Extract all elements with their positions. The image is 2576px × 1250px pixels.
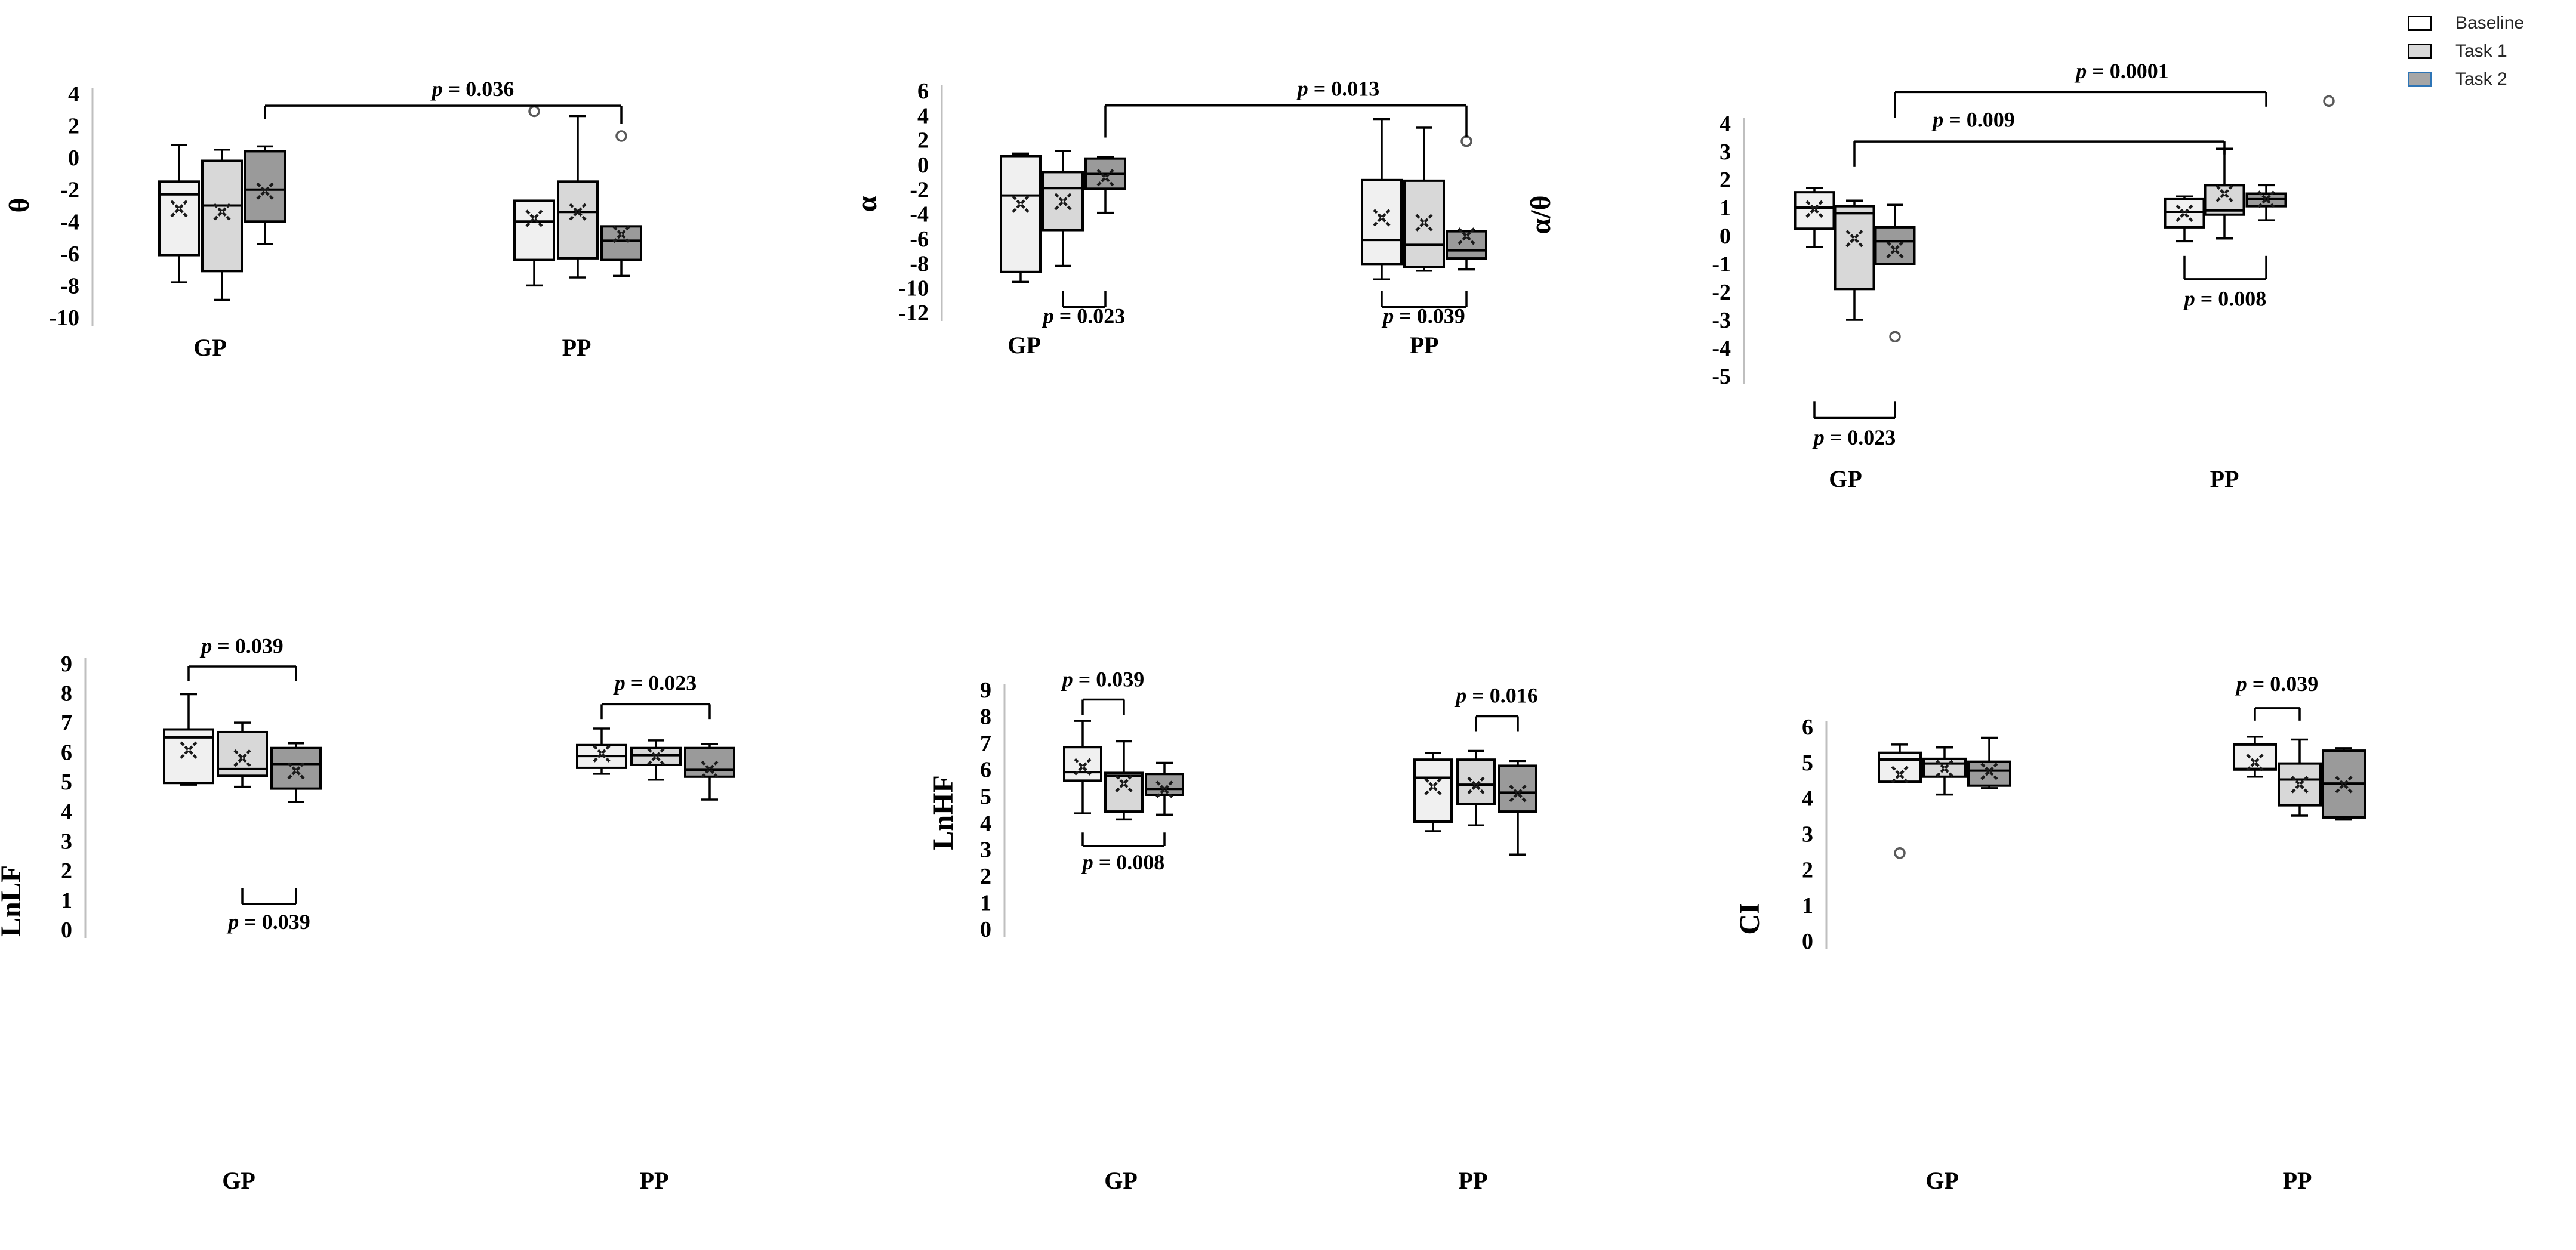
outlier-point <box>2324 96 2334 106</box>
y-tick-label: 7 <box>61 711 72 736</box>
y-tick-label: -8 <box>910 251 929 276</box>
y-tick-label: 1 <box>980 890 991 915</box>
y-tick-label: -10 <box>49 305 79 331</box>
y-tick-label: 2 <box>1720 168 1731 193</box>
box-GP-baseline <box>1001 153 1040 282</box>
y-axis-title: CI <box>1734 903 1765 934</box>
box-PP-baseline <box>1415 753 1452 831</box>
box-GP-baseline <box>1795 188 1834 247</box>
p-value-label: p = 0.0001 <box>2074 59 2169 83</box>
group-label-PP: PP <box>1410 332 1439 359</box>
significance-bracket: p = 0.016 <box>1454 683 1538 731</box>
significance-bracket: p = 0.009 <box>1854 108 2224 167</box>
box-GP-task2 <box>1968 738 2010 788</box>
y-axis-title: α/θ <box>1525 195 1557 234</box>
box-PP-task1 <box>2279 740 2321 816</box>
box-PP-task1 <box>631 740 680 780</box>
y-tick-label: 0 <box>917 153 929 178</box>
legend-swatch-baseline-icon <box>2408 16 2432 31</box>
group-label-PP: PP <box>2283 1167 2312 1194</box>
outlier-point <box>529 106 539 116</box>
box-PP-task2 <box>1447 137 1486 270</box>
p-value-label: p = 0.023 <box>613 671 697 695</box>
p-value-label: p = 0.036 <box>430 77 514 101</box>
outlier-point <box>1462 137 1471 146</box>
group-label-PP: PP <box>2210 465 2239 492</box>
box-PP-task1 <box>1458 751 1495 825</box>
group-label-GP: GP <box>193 334 227 361</box>
y-tick-label: 3 <box>1802 822 1813 847</box>
y-tick-label: 1 <box>1720 196 1731 221</box>
legend-item-task2: Task 2 <box>2408 70 2524 88</box>
significance-bracket: p = 0.023 <box>1042 291 1126 328</box>
p-value-label: p = 0.023 <box>1042 304 1126 328</box>
box-GP-task2 <box>1146 763 1183 815</box>
y-tick-label: 1 <box>61 888 72 913</box>
significance-bracket: p = 0.023 <box>1812 401 1896 449</box>
box-GP-baseline <box>1064 721 1101 813</box>
box-PP-baseline <box>1362 119 1401 280</box>
subplot-lnhf: 9876543210LnHFGPPPp = 0.039p = 0.008p = … <box>928 668 1538 1194</box>
outlier-point <box>1895 848 1905 858</box>
significance-bracket: p = 0.039 <box>189 634 296 681</box>
y-tick-label: 4 <box>980 811 991 836</box>
y-tick-label: -10 <box>898 276 929 301</box>
group-label-GP: GP <box>222 1167 255 1194</box>
p-value-label: p = 0.039 <box>226 910 310 934</box>
subplot-lnlf: 9876543210LnLFGPPPp = 0.039p = 0.039p = … <box>0 634 734 1194</box>
y-tick-label: 3 <box>980 837 991 862</box>
box-PP-baseline <box>2234 737 2276 777</box>
y-tick-label: 0 <box>68 146 79 171</box>
y-tick-label: 6 <box>1802 715 1813 740</box>
outlier-point <box>1890 332 1900 341</box>
group-label-GP: GP <box>1829 465 1862 492</box>
y-tick-label: -2 <box>1712 280 1731 305</box>
box-PP-task1 <box>558 116 597 278</box>
y-tick-label: -2 <box>910 177 929 202</box>
legend-label-task1: Task 1 <box>2455 42 2507 60</box>
box-PP-baseline <box>577 729 626 774</box>
y-axis-title: LnLF <box>0 865 27 937</box>
p-value-label: p = 0.009 <box>1931 108 2015 132</box>
y-tick-label: -4 <box>60 209 79 234</box>
box-GP-task1 <box>218 723 267 787</box>
legend-label-task2: Task 2 <box>2455 70 2507 88</box>
y-tick-label: 3 <box>1720 140 1731 165</box>
group-label-PP: PP <box>562 334 591 361</box>
box-GP-task2 <box>272 743 321 802</box>
y-tick-label: -12 <box>898 301 929 326</box>
y-axis-title: θ <box>4 197 35 212</box>
subplot-theta: 420-2-4-6-8-10θGPPPp = 0.036 <box>4 77 641 361</box>
significance-bracket: p = 0.039 <box>1061 668 1145 715</box>
box-GP-task2 <box>1876 205 1915 341</box>
significance-bracket: p = 0.008 <box>2183 256 2267 311</box>
p-value-label: p = 0.039 <box>2235 672 2319 696</box>
y-tick-label: 5 <box>1802 751 1813 776</box>
p-value-label: p = 0.039 <box>1061 668 1145 692</box>
y-tick-label: 4 <box>1802 786 1813 811</box>
group-label-GP: GP <box>1925 1167 1959 1194</box>
subplot-alpha: 6420-2-4-6-8-10-12αGPPPp = 0.013p = 0.02… <box>851 76 1486 359</box>
y-tick-label: 7 <box>980 731 991 756</box>
y-tick-label: -8 <box>60 273 79 298</box>
legend-item-baseline: Baseline <box>2408 14 2524 32</box>
y-tick-label: -4 <box>1712 336 1731 361</box>
significance-bracket: p = 0.039 <box>2235 672 2319 721</box>
legend-label-baseline: Baseline <box>2455 14 2524 32</box>
box-PP-baseline <box>514 106 554 285</box>
box-GP-task1 <box>202 150 242 300</box>
y-tick-label: 4 <box>68 82 79 107</box>
subplot-ratio: 43210-1-2-3-4-5α/θGPPPp = 0.0001p = 0.00… <box>1525 59 2334 492</box>
y-axis-title: LnHF <box>928 775 959 850</box>
significance-bracket: p = 0.023 <box>602 671 710 720</box>
y-tick-label: 5 <box>61 770 72 795</box>
y-tick-label: -5 <box>1712 364 1731 389</box>
box-PP-task2 <box>1499 761 1536 854</box>
box-GP-baseline <box>159 145 199 282</box>
box-PP-baseline <box>2165 196 2204 241</box>
significance-bracket: p = 0.039 <box>226 888 310 934</box>
box-GP-task1 <box>1043 151 1083 266</box>
p-value-label: p = 0.023 <box>1812 425 1896 449</box>
y-tick-label: 6 <box>980 758 991 783</box>
p-value-label: p = 0.008 <box>2183 287 2267 311</box>
y-tick-label: 9 <box>980 678 991 703</box>
y-tick-label: 4 <box>61 800 72 825</box>
y-tick-label: 2 <box>980 864 991 889</box>
p-value-label: p = 0.039 <box>199 634 284 658</box>
box-PP-task2 <box>685 744 734 800</box>
box-GP-baseline <box>164 695 213 785</box>
y-tick-label: 0 <box>61 918 72 943</box>
box-PP-task2 <box>2247 96 2334 220</box>
subplot-ci: 6543210CIGPPPp = 0.039 <box>1734 672 2365 1194</box>
box-PP-task1 <box>2205 149 2244 238</box>
y-tick-label: 6 <box>917 79 929 104</box>
significance-bracket: p = 0.008 <box>1081 832 1165 874</box>
y-tick-label: 2 <box>61 859 72 884</box>
y-axis-title: α <box>851 196 883 212</box>
y-tick-label: -3 <box>1712 308 1731 333</box>
box-GP-baseline <box>1879 745 1921 858</box>
group-label-GP: GP <box>1007 332 1041 359</box>
y-tick-label: 5 <box>980 784 991 809</box>
significance-bracket: p = 0.039 <box>1381 291 1466 328</box>
y-tick-label: 4 <box>1720 112 1731 137</box>
y-tick-label: -6 <box>910 227 929 252</box>
significance-bracket: p = 0.036 <box>265 77 621 124</box>
y-tick-label: -6 <box>60 242 79 267</box>
y-tick-label: -4 <box>910 202 929 227</box>
box-GP-task2 <box>245 146 285 243</box>
y-tick-label: 2 <box>917 128 929 153</box>
p-value-label: p = 0.039 <box>1381 304 1465 328</box>
p-value-label: p = 0.008 <box>1081 850 1165 874</box>
y-tick-label: 0 <box>1720 224 1731 249</box>
y-tick-label: 1 <box>1802 893 1813 918</box>
box-PP-task2 <box>602 131 641 276</box>
y-tick-label: -2 <box>60 178 79 203</box>
group-label-PP: PP <box>640 1167 669 1194</box>
box-GP-task1 <box>1105 741 1142 819</box>
y-tick-label: 3 <box>61 829 72 854</box>
y-tick-label: -1 <box>1712 252 1731 277</box>
y-tick-label: 4 <box>917 103 929 128</box>
significance-bracket: p = 0.013 <box>1105 76 1466 137</box>
boxplot-figure: 420-2-4-6-8-10θGPPPp = 0.0366420-2-4-6-8… <box>0 0 2576 1250</box>
y-tick-label: 6 <box>61 740 72 766</box>
legend: Baseline Task 1 Task 2 <box>2408 14 2524 88</box>
legend-swatch-task2-icon <box>2408 72 2432 87</box>
y-tick-label: 2 <box>1802 857 1813 882</box>
y-tick-label: 0 <box>1802 929 1813 954</box>
box-PP-task2 <box>2323 748 2365 820</box>
y-tick-label: 0 <box>980 917 991 942</box>
y-tick-label: 9 <box>61 652 72 677</box>
box-GP-task1 <box>1924 748 1965 795</box>
legend-swatch-task1-icon <box>2408 44 2432 59</box>
box-GP-task2 <box>1086 158 1125 213</box>
group-label-GP: GP <box>1104 1167 1138 1194</box>
group-label-PP: PP <box>1459 1167 1488 1194</box>
y-tick-label: 2 <box>68 114 79 139</box>
y-tick-label: 8 <box>61 681 72 706</box>
box-PP-task1 <box>1404 128 1444 271</box>
p-value-label: p = 0.016 <box>1454 683 1538 707</box>
p-value-label: p = 0.013 <box>1296 76 1380 100</box>
box-GP-task1 <box>1835 200 1874 320</box>
outlier-point <box>617 131 626 141</box>
legend-item-task1: Task 1 <box>2408 42 2524 60</box>
figure-canvas: 420-2-4-6-8-10θGPPPp = 0.0366420-2-4-6-8… <box>0 0 2576 1250</box>
y-tick-label: 8 <box>980 705 991 730</box>
